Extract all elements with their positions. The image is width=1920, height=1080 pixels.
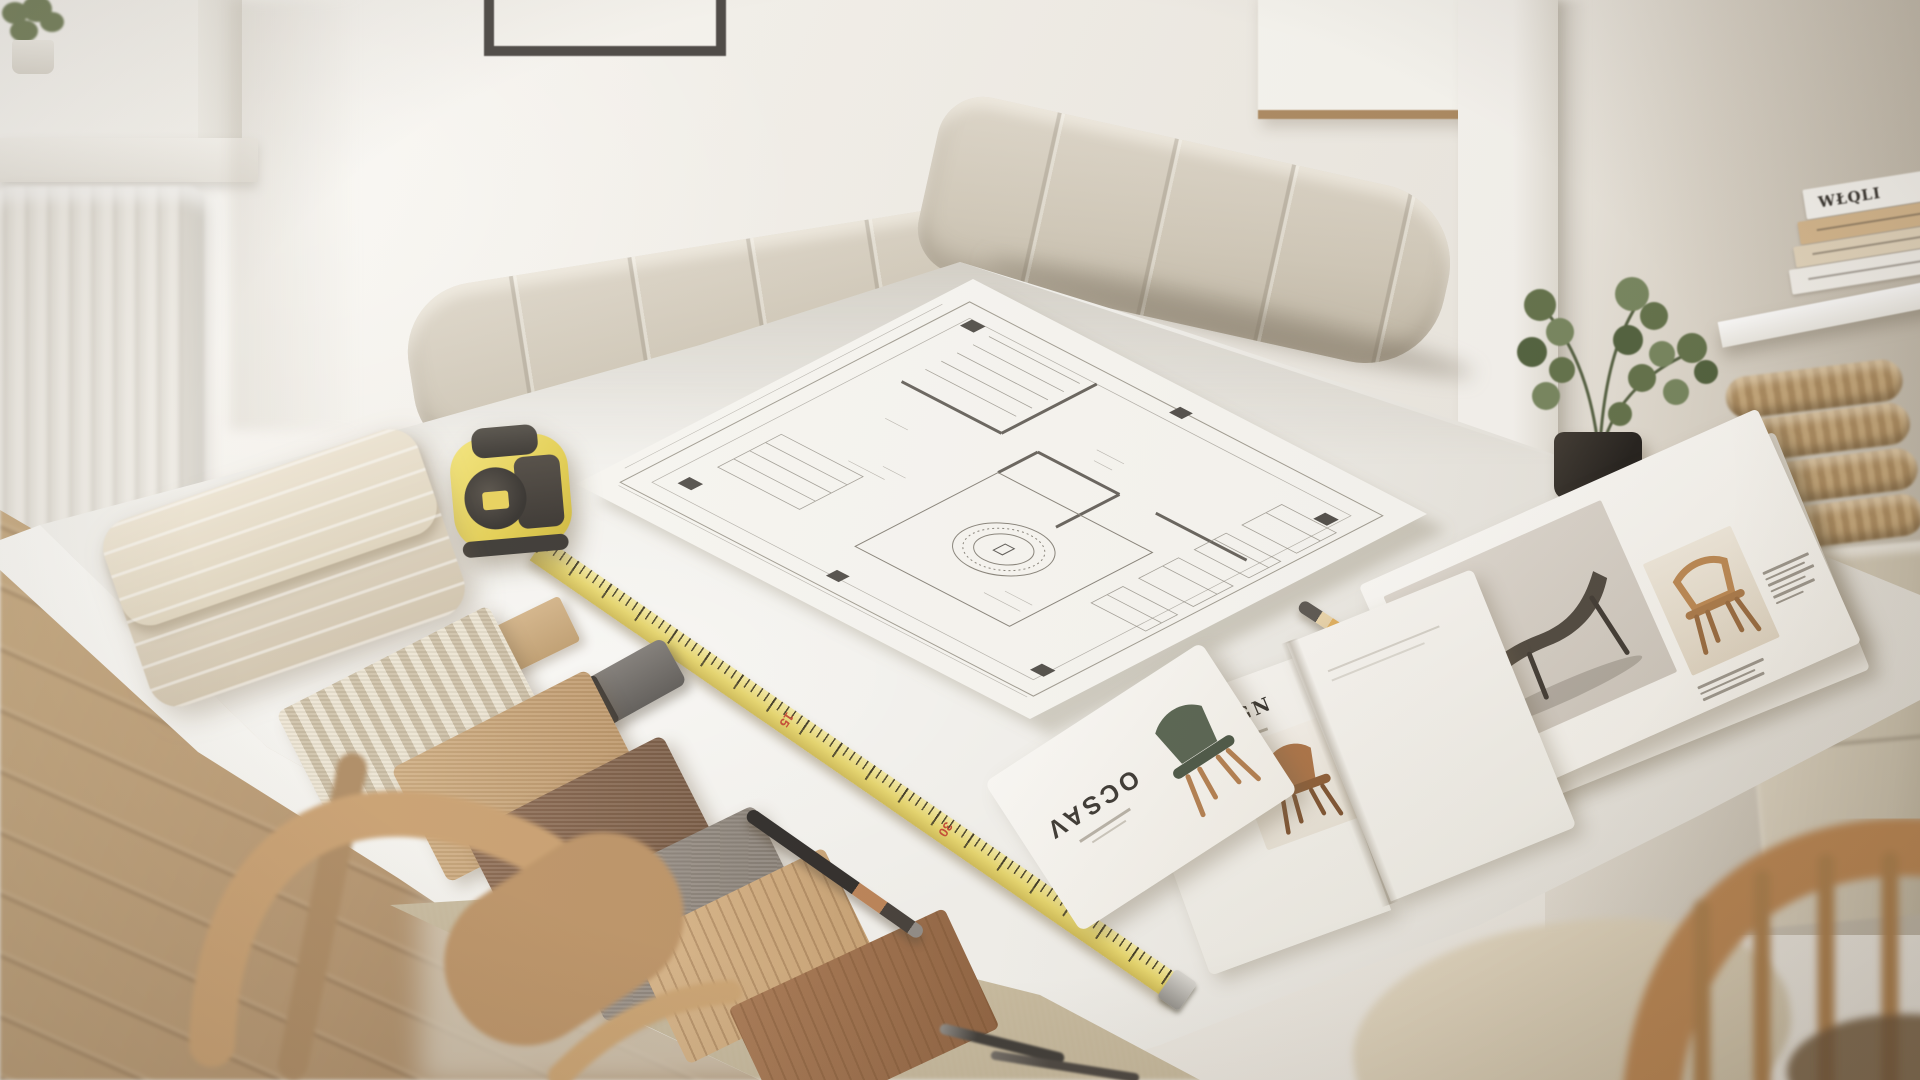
windowsill-plant-pot: [12, 40, 54, 74]
pen-tips: [930, 1028, 1150, 1080]
catalog-text-column: [1761, 548, 1824, 608]
interior-design-workspace-photo: WŁQLI: [0, 0, 1920, 1080]
tape-measure-body: [447, 431, 574, 553]
book-title: WŁQLI: [1817, 184, 1882, 212]
picture-frame-top-center: [484, 0, 726, 56]
picture-frame-top-right: [1258, 0, 1469, 119]
window-sill: [0, 138, 258, 182]
wall-shadow: [230, 0, 360, 430]
